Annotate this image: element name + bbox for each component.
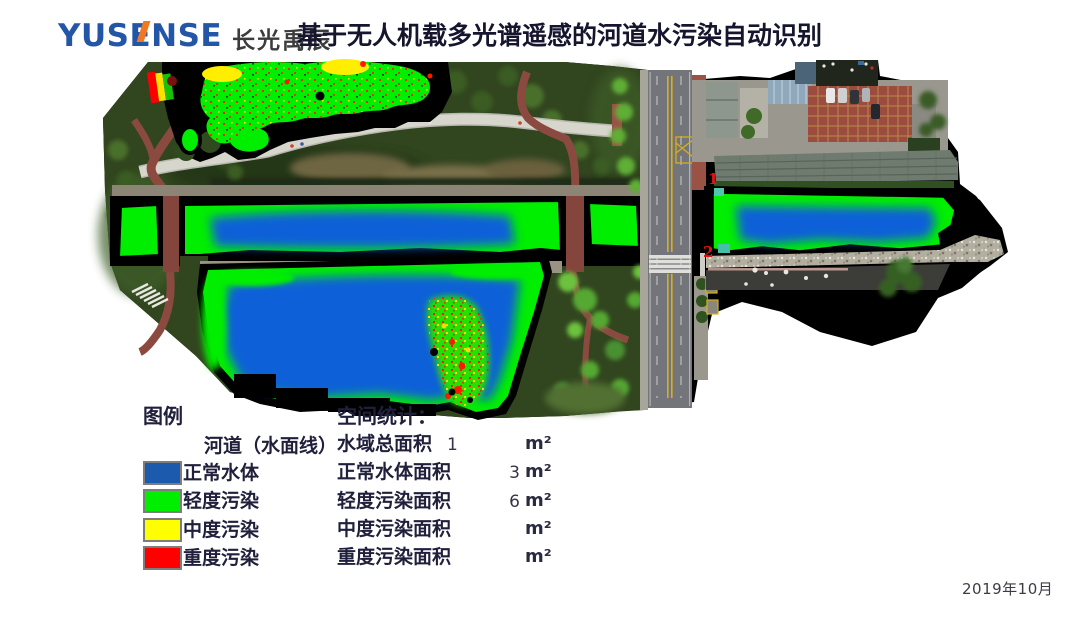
legend-swatch-3 xyxy=(143,546,182,570)
legend-title: 图例 xyxy=(143,400,183,429)
stats-row: 水域总面积1m² xyxy=(337,432,587,456)
stats-unit: m² xyxy=(525,460,552,484)
logo: YUSENSE 长光禹辰 xyxy=(58,16,332,55)
date-label: 2019年10月 xyxy=(962,578,1053,599)
map-point-label-2: 2 xyxy=(703,243,713,261)
legend-label: 中度污染 xyxy=(183,518,259,542)
map-point-label-1: 1 xyxy=(708,170,718,188)
stats-unit: m² xyxy=(525,517,552,541)
stats-title: 空间统计： xyxy=(337,400,437,429)
stats-unit: m² xyxy=(525,432,552,456)
stats-value: 1 xyxy=(447,434,458,456)
stats-unit: m² xyxy=(525,489,552,513)
stats-row: 正常水体面积3m² xyxy=(337,460,587,484)
legend-label: 轻度污染 xyxy=(183,489,259,513)
stats-label: 中度污染面积 xyxy=(337,517,451,541)
stats-label: 重度污染面积 xyxy=(337,545,451,569)
stats-row: 中度污染面积m² xyxy=(337,517,587,541)
legend-swatch-0 xyxy=(143,461,182,485)
legend-label: 重度污染 xyxy=(183,546,259,570)
river-right-segment xyxy=(704,186,1008,297)
stats-unit: m² xyxy=(525,545,552,569)
page-title: 基于无人机载多光谱遥感的河道水污染自动识别 xyxy=(297,16,822,52)
river-left-segment xyxy=(118,204,160,258)
stats-label: 轻度污染面积 xyxy=(337,489,451,513)
slide: YUSENSE 长光禹辰 基于无人机载多光谱遥感的河道水污染自动识别 1 2 图… xyxy=(0,0,1080,618)
stats-value: 6 xyxy=(452,491,520,513)
stats-label: 正常水体面积 xyxy=(337,460,451,484)
heavy-pollution-patch xyxy=(147,69,174,103)
stats-row: 轻度污染面积6m² xyxy=(337,489,587,513)
legend-swatch-1 xyxy=(143,489,182,513)
stats-label: 水域总面积 xyxy=(337,432,432,456)
legend-swatch-2 xyxy=(143,518,182,542)
bridge-2 xyxy=(566,196,584,272)
bridge-1 xyxy=(163,196,179,272)
stats-value: 3 xyxy=(452,462,520,484)
plaza xyxy=(808,86,912,142)
stats-row: 重度污染面积m² xyxy=(337,545,587,569)
legend-river-line-label: 河道（水面线） xyxy=(204,431,337,458)
legend-label: 正常水体 xyxy=(183,461,259,485)
